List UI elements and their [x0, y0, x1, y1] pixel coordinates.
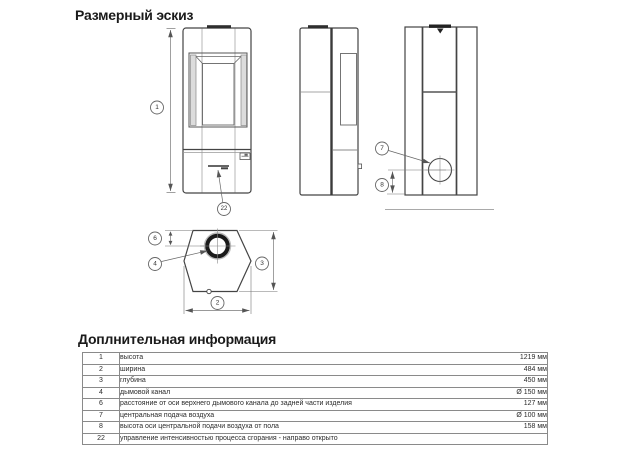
table-row: 8 высота оси центральной подачи воздуха …: [83, 422, 548, 434]
svg-text:1: 1: [155, 104, 159, 111]
dimension-height: [167, 29, 176, 193]
svg-text:22: 22: [221, 206, 228, 212]
row-number: 6: [83, 399, 120, 411]
table-row: 7 центральная подача воздуха Ø 100 мм: [83, 410, 548, 422]
row-number: 2: [83, 364, 120, 376]
callout-control: 22: [218, 203, 231, 216]
row-number: 7: [83, 410, 120, 422]
row-number: 3: [83, 376, 120, 388]
svg-text:3: 3: [260, 260, 264, 267]
front-view: 1 22: [151, 25, 252, 215]
callout-height: 1: [151, 101, 164, 114]
rear-view: 7 8: [376, 25, 495, 210]
table-row: 2 ширина 484 мм: [83, 364, 548, 376]
row-description: высота оси центральной подачи воздуха от…: [120, 422, 476, 434]
door-glass: [189, 53, 247, 127]
table-row: 4 дымовой канал Ø 150 мм: [83, 387, 548, 399]
table-row: 22 управление интенсивностью процесса сг…: [83, 433, 548, 445]
side-glass-recess: [341, 54, 357, 126]
callout-depth: 3: [256, 257, 269, 270]
side-view: [300, 25, 362, 195]
row-description: расстояние от оси верхнего дымового кана…: [120, 399, 476, 411]
row-value: 484 мм: [475, 364, 548, 376]
row-value: 450 мм: [475, 376, 548, 388]
callout-flue: 4: [149, 258, 162, 271]
leader-control: [218, 170, 223, 203]
table-row: 6 расстояние от оси верхнего дымового ка…: [83, 399, 548, 411]
latch: [240, 153, 250, 160]
info-section-title: Доплнительная информация: [78, 331, 276, 347]
svg-text:7: 7: [380, 145, 384, 152]
row-value: Ø 100 мм: [475, 410, 548, 422]
callout-flue-offset: 6: [149, 232, 162, 245]
row-number: 1: [83, 353, 120, 365]
row-number: 22: [83, 433, 120, 445]
combustion-control-lever: [208, 166, 229, 169]
flue-collar-side: [308, 25, 328, 28]
svg-text:6: 6: [153, 235, 157, 242]
callout-air-supply: 7: [376, 142, 389, 155]
rear-knob: [207, 289, 211, 293]
svg-text:4: 4: [153, 261, 157, 268]
row-number: 8: [83, 422, 120, 434]
document-page: Размерный эскиз: [0, 0, 624, 460]
callout-air-height: 8: [376, 179, 389, 192]
row-description: высота: [120, 353, 476, 365]
row-value: 1219 мм: [475, 353, 548, 365]
top-view: 6 4 3: [149, 229, 278, 315]
air-stub: [358, 164, 362, 169]
row-description: глубина: [120, 376, 476, 388]
table-row: 3 глубина 450 мм: [83, 376, 548, 388]
table-row: 1 высота 1219 мм: [83, 353, 548, 365]
svg-text:8: 8: [380, 182, 384, 189]
row-value: 127 мм: [475, 399, 548, 411]
row-number: 4: [83, 387, 120, 399]
dimensions-table: 1 высота 1219 мм 2 ширина 484 мм 3 глуби…: [82, 352, 548, 445]
row-value: Ø 150 мм: [475, 387, 548, 399]
row-description: ширина: [120, 364, 476, 376]
row-value: 158 мм: [475, 422, 548, 434]
flue-collar-front: [207, 25, 231, 28]
leader-air-supply: [389, 151, 431, 164]
row-description: дымовой канал: [120, 387, 476, 399]
row-description: управление интенсивностью процесса сгора…: [120, 433, 476, 445]
svg-text:2: 2: [216, 300, 220, 307]
row-value: [475, 433, 548, 445]
row-description: центральная подача воздуха: [120, 410, 476, 422]
flue-collar-rear: [429, 25, 451, 28]
callout-width: 2: [211, 297, 224, 310]
